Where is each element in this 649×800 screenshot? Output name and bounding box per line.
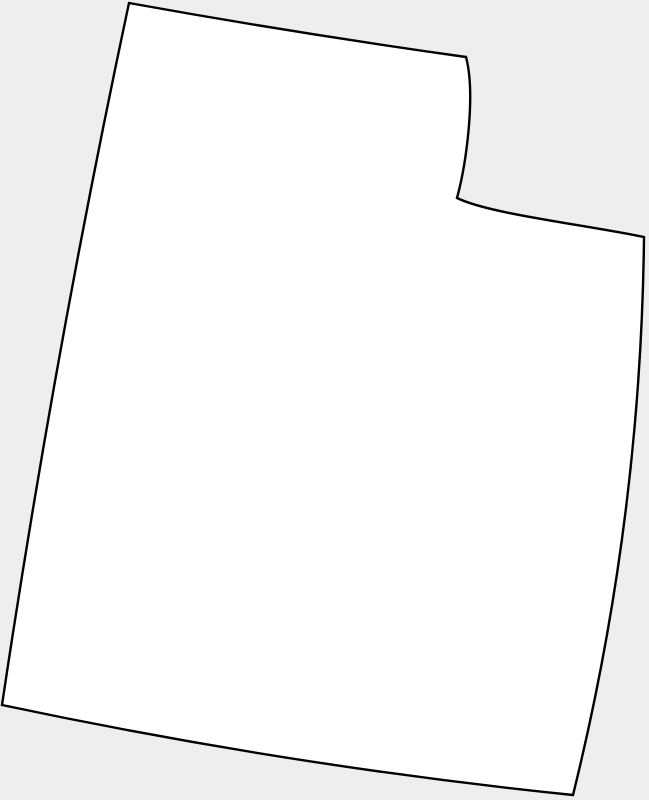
utah-outline-map bbox=[0, 0, 649, 800]
map-canvas bbox=[0, 0, 649, 800]
